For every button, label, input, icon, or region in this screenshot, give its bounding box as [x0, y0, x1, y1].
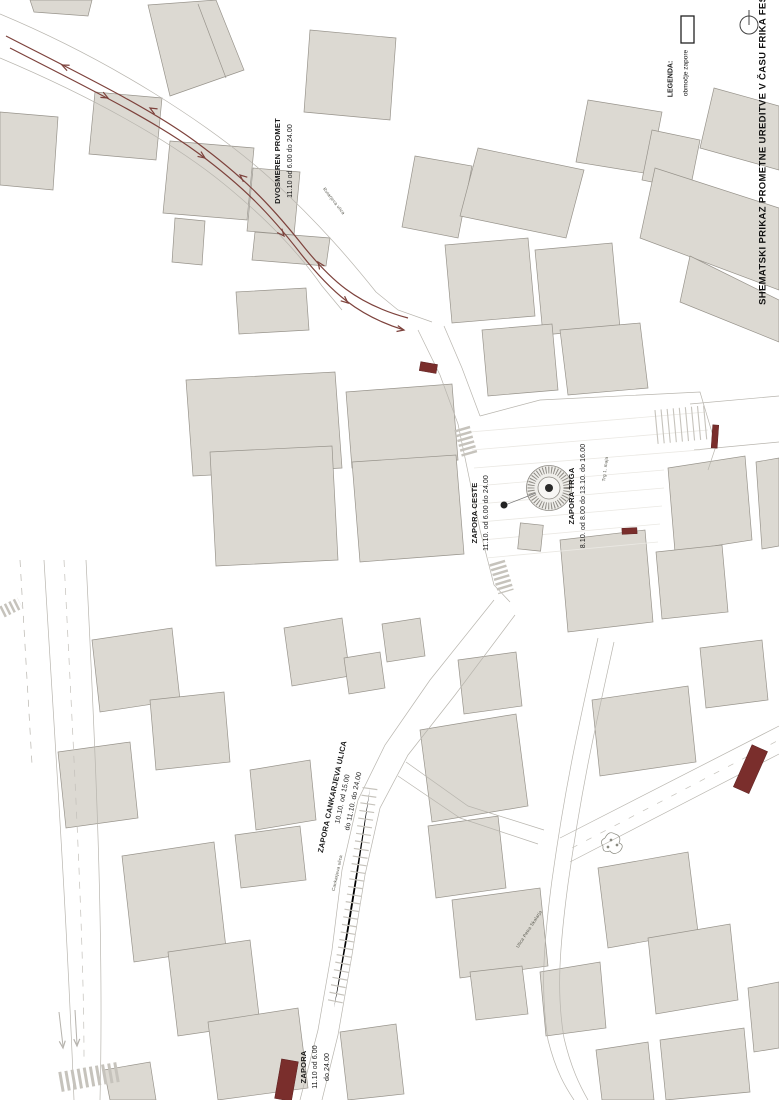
square-closure-title: ZAPORA TRGA — [566, 444, 578, 548]
two-way-title: DVOSMEREN PROMET — [271, 118, 284, 204]
north-icon — [740, 10, 758, 34]
road-closure-schedule: 11.10. od 6.00 do 24.00 — [481, 475, 493, 551]
map-canvas — [0, 0, 779, 1100]
tree-icon — [601, 833, 622, 854]
square-kiosk-building — [518, 523, 544, 551]
legend-item-label: območje zapore — [683, 50, 690, 96]
legend-heading: LEGENDA: — [668, 61, 675, 98]
road-closure-title: ZAPORA CESTE — [469, 475, 481, 551]
south-closure-title: ZAPORA — [298, 1045, 310, 1089]
south-closure-label: ZAPORA 11.10 od 6.00 do 24.00 — [298, 1045, 334, 1089]
square-closure-label: ZAPORA TRGA 8.10. od 8.00 do 13.10. do 1… — [566, 444, 590, 548]
two-way-schedule: 11.10 od 6.00 do 24.00 — [284, 118, 297, 204]
south-closure-schedule1: 11.10 od 6.00 — [310, 1045, 322, 1089]
legend-swatch — [681, 16, 694, 43]
south-closure-schedule2: do 24.00 — [322, 1045, 334, 1089]
road-closure-label: ZAPORA CESTE 11.10. od 6.00 do 24.00 — [469, 475, 493, 551]
closure-marker-north — [419, 362, 437, 374]
buildings-layer — [0, 0, 779, 1100]
lane-arrows — [59, 1010, 80, 1048]
fountain — [501, 466, 572, 552]
two-way-label: DVOSMEREN PROMET 11.10 od 6.00 do 24.00 — [271, 118, 297, 204]
map-title: SHEMATSKI PRIKAZ PROMETNE UREDITVE V ČAS… — [758, 0, 769, 305]
traffic-map: SHEMATSKI PRIKAZ PROMETNE UREDITVE V ČAS… — [0, 0, 779, 1100]
closure-marker-east — [711, 425, 719, 448]
closure-marker-southeast — [733, 745, 767, 794]
closure-marker-square-south — [622, 528, 637, 535]
square-closure-schedule: 8.10. od 8.00 do 13.10. do 16.00 — [578, 444, 590, 548]
monument-dot — [501, 502, 508, 509]
